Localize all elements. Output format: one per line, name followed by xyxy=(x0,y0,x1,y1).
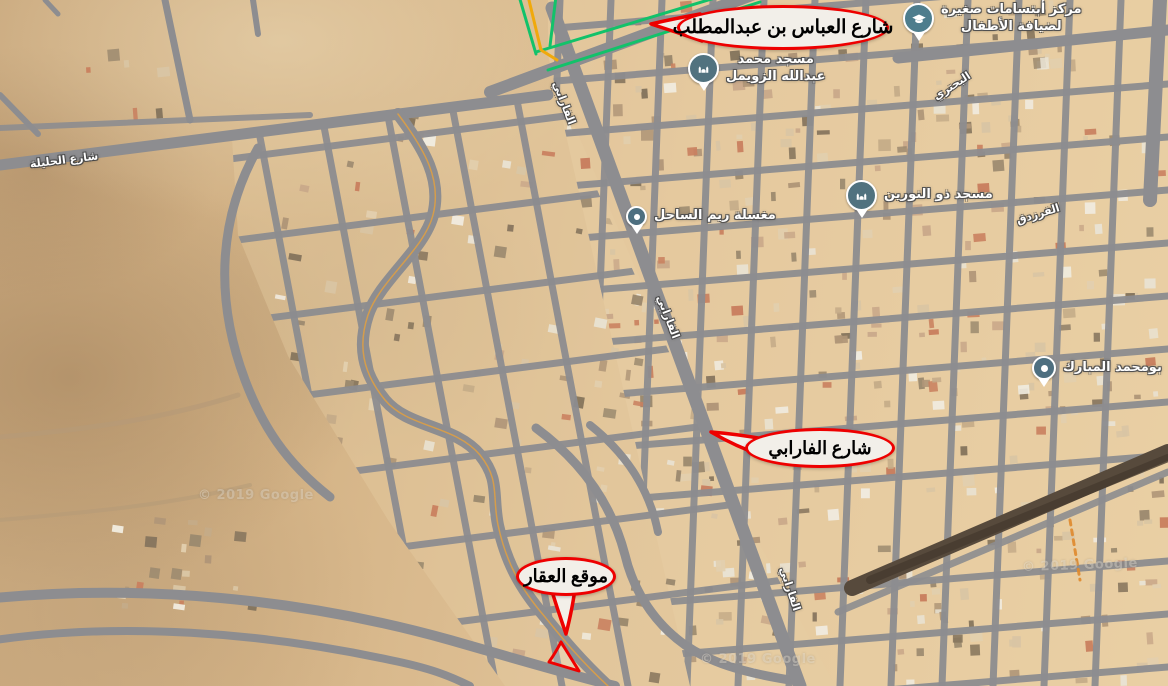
mosque-icon[interactable] xyxy=(688,53,719,84)
poi-mosque-zuwaimel-line1: مسجد محمد xyxy=(726,52,825,69)
poi-mosque-zuwaimel-line2: عبدالله الزويمل xyxy=(726,69,825,86)
poi-laundry-label: مغسلة ريم الساحل xyxy=(654,208,776,225)
google-watermark: © 2019 Google xyxy=(700,652,816,667)
mosque-icon[interactable] xyxy=(846,180,877,211)
mosque-glyph xyxy=(853,187,870,204)
poi-mosque-zuwaimel[interactable]: مسجد محمد عبدالله الزويمل xyxy=(688,52,825,86)
poi-bumohammad[interactable]: بومحمد المبارك xyxy=(1032,356,1162,380)
place-pin-icon[interactable] xyxy=(626,206,647,227)
poi-bumohammad-label: بومحمد المبارك xyxy=(1063,360,1162,377)
callout-street-abbas: شارع العباس بن عبدالمطلب xyxy=(677,5,889,50)
poi-mosque-nurayn-label: مسجد ذو النورين xyxy=(884,187,993,204)
callout-street-farabi: شارع الفارابي xyxy=(745,428,895,468)
place-pin-icon[interactable] xyxy=(1032,356,1056,380)
google-watermark: © 2019 Google xyxy=(198,488,314,503)
callout-property-location: موقع العقار xyxy=(516,557,616,596)
graduation-cap-glyph xyxy=(910,10,928,28)
graduation-cap-icon[interactable] xyxy=(903,3,934,34)
mosque-glyph xyxy=(695,60,712,77)
poi-laundry[interactable]: مغسلة ريم الساحل xyxy=(626,206,776,227)
map-canvas[interactable]: شارع الحليلة البحتري الفرزدق الفارابي ال… xyxy=(0,0,1168,686)
poi-mosque-nurayn[interactable]: مسجد ذو النورين xyxy=(846,180,993,211)
poi-kids-center-line2: لضيافة الأطفال xyxy=(941,19,1082,36)
poi-kids-center-line1: مركز أبتسامات صغيرة xyxy=(941,2,1082,19)
poi-kids-center[interactable]: مركز أبتسامات صغيرة لضيافة الأطفال xyxy=(903,2,1082,36)
